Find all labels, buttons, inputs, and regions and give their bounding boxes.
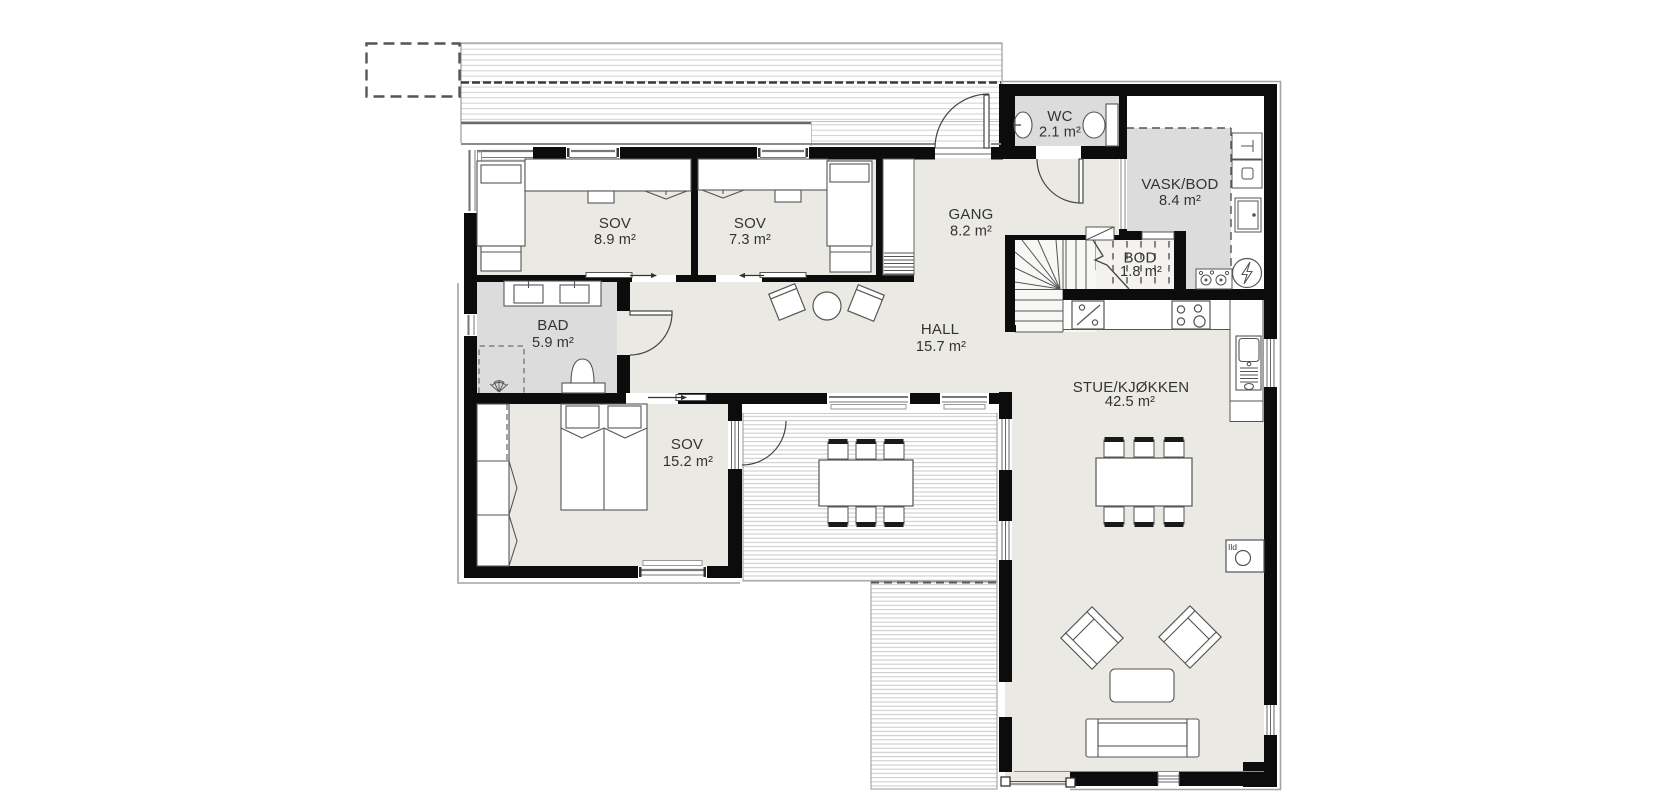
svg-text:SOV: SOV xyxy=(599,215,631,232)
svg-text:SOV: SOV xyxy=(671,436,703,453)
svg-text:8.4 m²: 8.4 m² xyxy=(1159,193,1201,209)
svg-text:15.2 m²: 15.2 m² xyxy=(663,454,713,470)
svg-text:42.5 m²: 42.5 m² xyxy=(1105,394,1155,410)
svg-text:BAD: BAD xyxy=(537,317,568,334)
svg-text:8.2 m²: 8.2 m² xyxy=(950,224,992,240)
svg-text:HALL: HALL xyxy=(921,321,959,338)
svg-text:1.8 m²: 1.8 m² xyxy=(1120,264,1162,280)
svg-text:5.9 m²: 5.9 m² xyxy=(532,335,574,351)
svg-text:WC: WC xyxy=(1047,108,1072,125)
svg-text:VASK/BOD: VASK/BOD xyxy=(1141,176,1218,193)
svg-text:15.7 m²: 15.7 m² xyxy=(916,339,966,355)
svg-text:SOV: SOV xyxy=(734,215,766,232)
svg-text:Ild: Ild xyxy=(1228,542,1237,552)
svg-text:2.1 m²: 2.1 m² xyxy=(1039,125,1081,141)
svg-text:GANG: GANG xyxy=(949,206,994,223)
svg-text:8.9 m²: 8.9 m² xyxy=(594,232,636,248)
svg-text:7.3 m²: 7.3 m² xyxy=(729,232,771,248)
